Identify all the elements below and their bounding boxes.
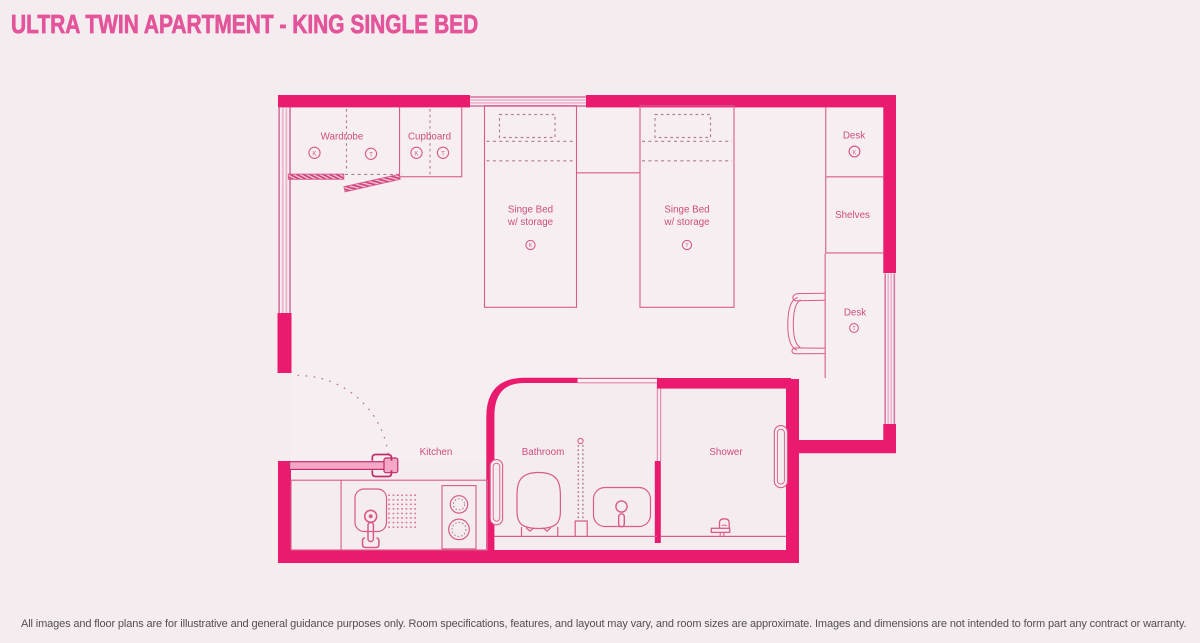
svg-text:Cupboard: Cupboard	[408, 132, 451, 143]
svg-text:T: T	[685, 243, 689, 249]
svg-text:Desk: Desk	[843, 131, 865, 142]
svg-text:K: K	[529, 243, 533, 249]
svg-text:Singe Bed: Singe Bed	[508, 205, 553, 216]
svg-text:Bathroom: Bathroom	[522, 447, 564, 458]
svg-text:Shelves: Shelves	[835, 210, 870, 221]
svg-text:T: T	[441, 150, 445, 157]
svg-text:w/ storage: w/ storage	[507, 217, 554, 228]
svg-text:Wardrobe: Wardrobe	[321, 132, 364, 143]
svg-text:w/ storage: w/ storage	[663, 217, 710, 228]
svg-text:Singe Bed: Singe Bed	[664, 205, 709, 216]
svg-text:Kitchen: Kitchen	[420, 447, 453, 458]
svg-text:Desk: Desk	[844, 308, 866, 319]
svg-text:Shower: Shower	[709, 447, 743, 458]
svg-text:T: T	[369, 151, 373, 158]
